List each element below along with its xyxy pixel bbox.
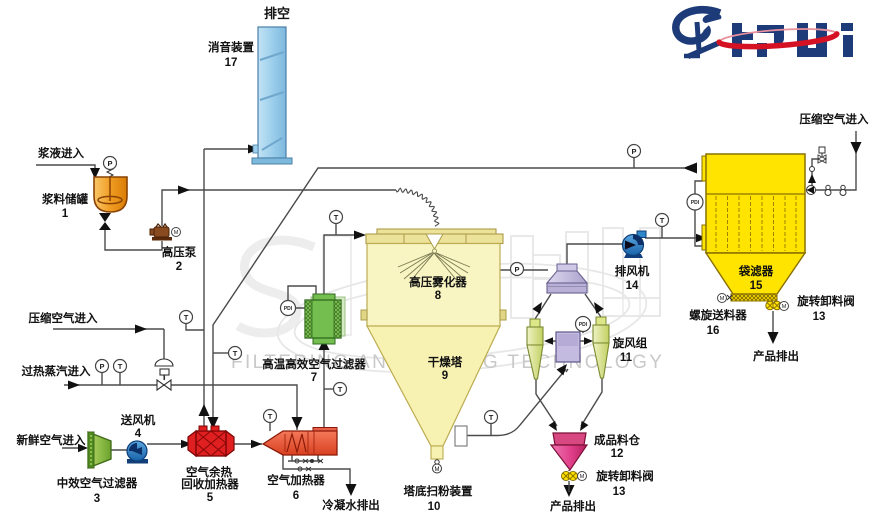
svg-text:旋转卸料阀: 旋转卸料阀 — [595, 469, 654, 483]
svg-text:9: 9 — [442, 370, 448, 382]
svg-text:T: T — [660, 216, 665, 225]
svg-text:压缩空气进入: 压缩空气进入 — [800, 112, 869, 126]
svg-text:产品排出: 产品排出 — [550, 499, 596, 513]
svg-text:17: 17 — [225, 57, 238, 69]
svg-text:旋风组: 旋风组 — [612, 336, 648, 350]
svg-text:空气加热器: 空气加热器 — [267, 473, 325, 487]
svg-text:5: 5 — [207, 492, 214, 504]
svg-text:8: 8 — [435, 290, 442, 302]
svg-text:2: 2 — [176, 261, 182, 273]
svg-text:T: T — [338, 385, 343, 394]
svg-text:PDI: PDI — [579, 322, 588, 328]
svg-text:过热蒸汽进入: 过热蒸汽进入 — [22, 364, 91, 378]
svg-text:7: 7 — [311, 372, 317, 384]
svg-text:消音装置: 消音装置 — [208, 40, 254, 54]
svg-text:干燥塔: 干燥塔 — [428, 355, 463, 369]
svg-text:3: 3 — [94, 493, 100, 505]
svg-text:新鲜空气进入: 新鲜空气进入 — [17, 433, 86, 447]
svg-text:1: 1 — [62, 208, 69, 220]
svg-text:13: 13 — [613, 486, 626, 498]
svg-text:成品料仓: 成品料仓 — [594, 433, 640, 447]
svg-text:送风机: 送风机 — [120, 413, 156, 427]
svg-text:T: T — [233, 349, 238, 358]
svg-text:塔底扫粉装置: 塔底扫粉装置 — [404, 484, 473, 498]
svg-text:空气余热: 空气余热 — [186, 465, 232, 479]
svg-text:M: M — [720, 296, 725, 302]
svg-text:10: 10 — [428, 501, 441, 513]
svg-text:T: T — [184, 313, 189, 322]
svg-text:P: P — [107, 159, 112, 168]
svg-text:13: 13 — [813, 311, 826, 323]
svg-text:排空: 排空 — [264, 6, 290, 21]
svg-text:P: P — [631, 147, 636, 156]
svg-text:浆料储罐: 浆料储罐 — [42, 192, 88, 206]
svg-text:PDI: PDI — [284, 306, 293, 312]
svg-text:高压雾化器: 高压雾化器 — [409, 275, 467, 289]
svg-text:6: 6 — [293, 490, 299, 502]
svg-text:高温高效空气过滤器: 高温高效空气过滤器 — [262, 357, 366, 371]
svg-text:M: M — [782, 304, 787, 310]
svg-text:T: T — [118, 362, 123, 371]
svg-text:中效空气过滤器: 中效空气过滤器 — [57, 476, 138, 490]
svg-text:排风机: 排风机 — [615, 264, 650, 278]
svg-text:螺旋送料器: 螺旋送料器 — [689, 308, 747, 322]
svg-text:袋滤器: 袋滤器 — [738, 264, 774, 278]
svg-text:12: 12 — [611, 448, 624, 460]
svg-text:压缩空气进入: 压缩空气进入 — [29, 311, 98, 325]
svg-text:11: 11 — [620, 352, 633, 364]
svg-text:T: T — [268, 412, 273, 421]
svg-text:T: T — [334, 213, 339, 222]
svg-text:浆液进入: 浆液进入 — [38, 146, 84, 160]
svg-text:14: 14 — [626, 280, 639, 292]
svg-text:旋转卸料阀: 旋转卸料阀 — [796, 294, 855, 308]
svg-text:冷凝水排出: 冷凝水排出 — [322, 498, 380, 512]
svg-text:PDI: PDI — [691, 200, 700, 206]
svg-text:4: 4 — [135, 428, 142, 440]
svg-text:P: P — [514, 265, 519, 274]
svg-text:P: P — [99, 362, 104, 371]
svg-text:M: M — [580, 474, 585, 480]
svg-text:T: T — [489, 413, 494, 422]
svg-text:M: M — [435, 467, 440, 473]
svg-text:M: M — [174, 230, 179, 236]
svg-text:16: 16 — [707, 325, 720, 337]
svg-text:高压泵: 高压泵 — [162, 245, 197, 259]
svg-text:回收加热器: 回收加热器 — [181, 477, 239, 491]
svg-text:产品排出: 产品排出 — [753, 349, 799, 363]
svg-text:15: 15 — [750, 280, 763, 292]
